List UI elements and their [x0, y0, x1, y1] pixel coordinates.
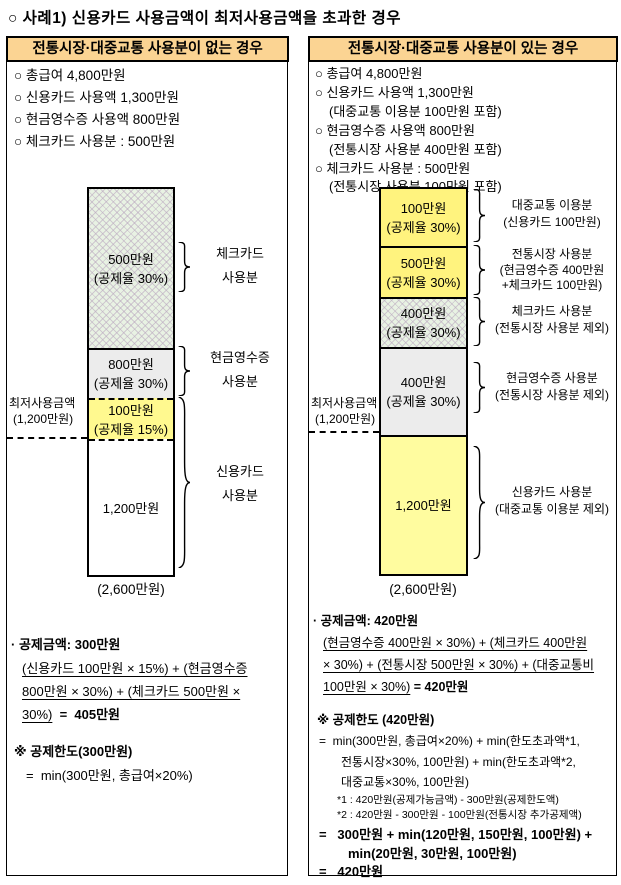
- limit-result-line: = 300만원 + min(120만원, 150만원, 100만원) +: [319, 824, 592, 843]
- segment-amount: 1,200만원: [395, 496, 451, 515]
- right-bullet-2: ○ 신용카드 사용액 1,300만원: [315, 82, 474, 101]
- brace-label-traditional-market: 전통시장 사용분 (현금영수증 400만원 +체크카드 100만원): [487, 247, 617, 294]
- segment-rate: (공제율 30%): [94, 374, 168, 393]
- brace-label-check-card: 체크카드 사용분 (전통시장 사용분 제외): [487, 303, 617, 337]
- min-usage-dashed-line: [309, 431, 379, 433]
- brace-label-cash-receipt: 현금영수증 사용분 (전통시장 사용분 제외): [487, 370, 617, 404]
- brace-label-cash-receipt: 현금영수증 사용분: [190, 346, 290, 394]
- right-deduction-title: · 공제금액: 420만원: [313, 610, 418, 629]
- right-bullet-4: ○ 체크카드 사용분 : 500만원: [315, 158, 470, 177]
- brace-icon: [472, 245, 485, 295]
- left-bullet-2: ○ 신용카드 사용액 1,300만원: [14, 86, 179, 106]
- segment-rate: (공제율 30%): [386, 323, 460, 342]
- deduction-formula-line: (신용카드 100만원 × 15%) + (현금영수증: [22, 658, 248, 677]
- page-title: ○ 사례1) 신용카드 사용금액이 최저사용금액을 초과한 경우: [8, 6, 401, 28]
- min-usage-label: 최저사용금액: [9, 394, 75, 411]
- brace-icon: [177, 242, 190, 292]
- segment-amount: 100만원: [108, 401, 154, 420]
- right-limit-line: 대중교통×30%, 100만원): [341, 773, 469, 790]
- segment-amount: 800만원: [108, 355, 154, 374]
- bar-segment-cash-receipt: 400만원 (공제율 30%): [381, 347, 466, 435]
- brace-label-public-transit: 대중교통 이용분 (신용카드 100만원): [487, 197, 617, 231]
- document-page: ○ 사례1) 신용카드 사용금액이 최저사용금액을 초과한 경우 전통시장·대중…: [0, 0, 621, 885]
- bar-segment-check-card: 500만원 (공제율 30%): [89, 189, 173, 348]
- bar-segment-credit-card: 1,200만원: [381, 435, 466, 574]
- bar-segment-public-transit: 100만원 (공제율 30%): [381, 189, 466, 246]
- brace-label-credit-card: 신용카드 사용분 (대중교통 이용분 제외): [487, 484, 617, 518]
- segment-amount: 500만원: [108, 250, 154, 269]
- bar-segment-check-card: 400만원 (공제율 30%): [381, 297, 466, 347]
- bar-segment-credit-over-min: 100만원 (공제율 15%): [89, 398, 173, 439]
- segment-amount: 500만원: [401, 254, 447, 273]
- limit-footnote-1: *1 : 420만원(공제가능금액) - 300만원(공제한도액): [337, 792, 559, 807]
- segment-rate: (공제율 30%): [94, 269, 168, 288]
- deduction-formula-line: 100만원 × 30%) = 420만원: [323, 676, 468, 695]
- min-usage-dashed-line: [7, 437, 87, 439]
- left-bullet-4: ○ 체크카드 사용분 : 500만원: [14, 130, 175, 150]
- segment-amount: 1,200만원: [103, 499, 159, 518]
- segment-amount: 400만원: [401, 304, 447, 323]
- brace-icon: [472, 297, 485, 346]
- right-bar-total: (2,600만원): [369, 578, 477, 598]
- min-usage-amount: (1,200만원): [13, 410, 73, 427]
- left-bullet-1: ○ 총급여 4,800만원: [14, 64, 126, 84]
- right-bullet-1: ○ 총급여 4,800만원: [315, 63, 422, 82]
- brace-icon: [472, 446, 485, 559]
- left-bar-total: (2,600만원): [77, 578, 185, 598]
- right-bullet-3: ○ 현금영수증 사용액 800만원: [315, 120, 475, 139]
- left-bullet-3: ○ 현금영수증 사용액 800만원: [14, 108, 180, 128]
- brace-icon: [472, 189, 485, 242]
- right-limit-line: = min(300만원, 총급여×20%) + min(한도초과액*1,: [319, 732, 580, 749]
- limit-result-line: min(20만원, 30만원, 100만원): [348, 843, 517, 862]
- right-limit-title: ※ 공제한도 (420만원): [317, 709, 434, 728]
- left-limit-line: = min(300만원, 총급여×20%): [26, 765, 193, 784]
- brace-icon: [177, 397, 190, 568]
- segment-rate: (공제율 15%): [94, 420, 168, 439]
- brace-label-credit-card: 신용카드 사용분: [190, 460, 290, 508]
- segment-rate: (공제율 30%): [386, 392, 460, 411]
- limit-footnote-2: *2 : 420만원 - 300만원 - 100만원(전통시장 추가공제액): [337, 807, 582, 822]
- deduction-formula-line: × 30%) + (전통시장 500만원 × 30%) + (대중교통비: [323, 654, 594, 673]
- segment-amount: 400만원: [401, 373, 447, 392]
- deduction-formula-line: (현금영수증 400만원 × 30%) + (체크카드 400만원: [323, 632, 587, 651]
- deduction-formula-line: 800만원 × 30%) + (체크카드 500만원 ×: [22, 681, 240, 700]
- bar-segment-traditional-market: 500만원 (공제율 30%): [381, 246, 466, 297]
- right-stacked-bar: 100만원 (공제율 30%) 500만원 (공제율 30%) 400만원 (공…: [379, 187, 468, 576]
- right-bullet-3b: (전통시장 사용분 400만원 포함): [329, 139, 502, 158]
- deduction-formula-line: 30%) = 405만원: [22, 704, 120, 723]
- right-bullet-2b: (대중교통 이용분 100만원 포함): [329, 101, 502, 120]
- right-limit-line: 전통시장×30%, 100만원) + min(한도초과액*2,: [341, 753, 576, 770]
- brace-label-check-card: 체크카드 사용분: [190, 242, 290, 290]
- limit-result-line: = 420만원: [319, 861, 383, 880]
- min-usage-amount: (1,200만원): [315, 410, 375, 427]
- brace-icon: [177, 346, 190, 396]
- left-panel-header: 전통시장·대중교통 사용분이 없는 경우: [6, 36, 289, 62]
- brace-icon: [472, 362, 485, 413]
- left-stacked-bar: 500만원 (공제율 30%) 800만원 (공제율 30%) 100만원 (공…: [87, 187, 175, 577]
- left-deduction-title: · 공제금액: 300만원: [11, 634, 120, 653]
- right-panel-header: 전통시장·대중교통 사용분이 있는 경우: [308, 36, 618, 62]
- segment-rate: (공제율 30%): [386, 218, 460, 237]
- bar-segment-credit-under-min: 1,200만원: [89, 439, 173, 575]
- bar-segment-cash-receipt: 800만원 (공제율 30%): [89, 348, 173, 398]
- segment-amount: 100만원: [401, 199, 447, 218]
- min-usage-label: 최저사용금액: [311, 394, 377, 411]
- left-limit-title: ※ 공제한도(300만원): [14, 741, 132, 760]
- segment-rate: (공제율 30%): [386, 273, 460, 292]
